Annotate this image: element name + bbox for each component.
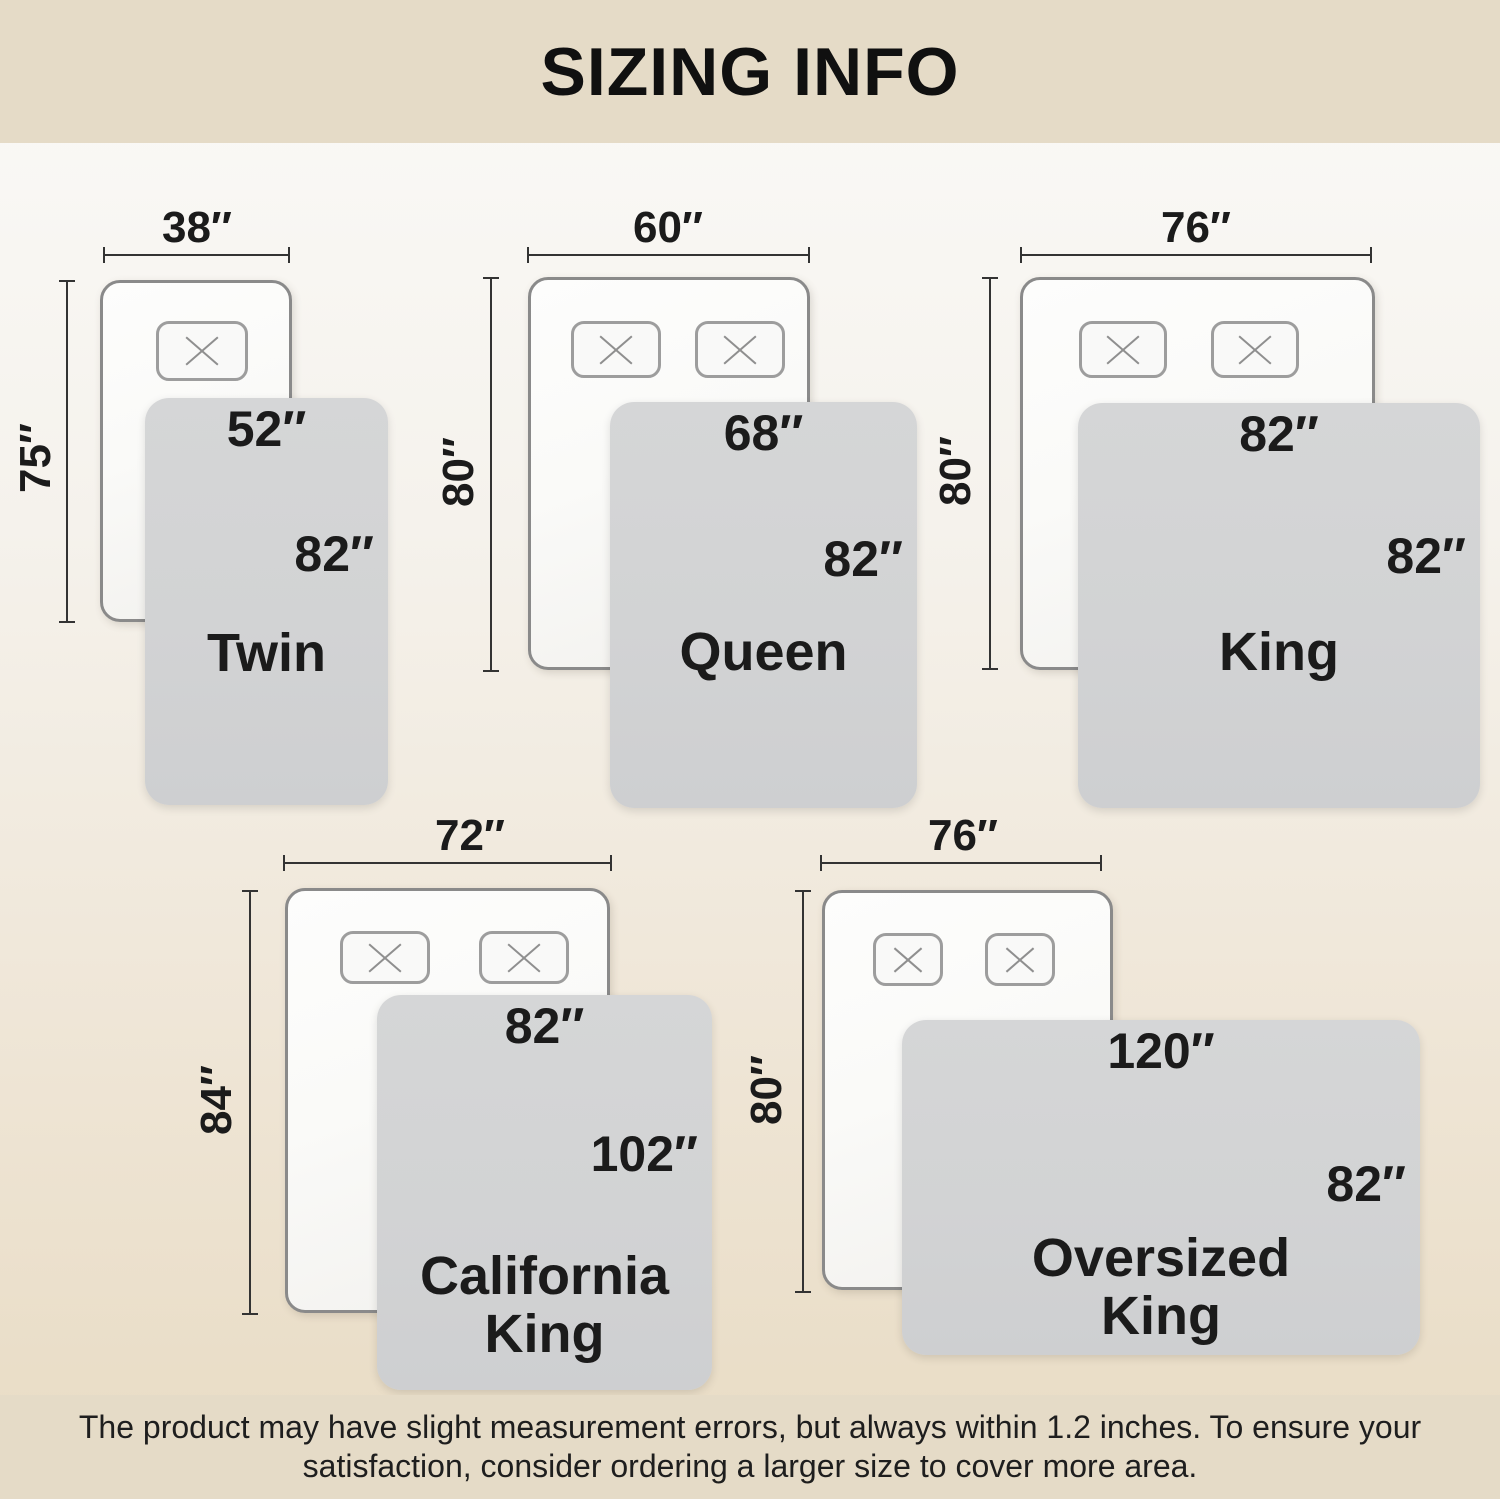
- blanket-length-label: 82″: [1326, 1155, 1406, 1213]
- pillow: [1211, 321, 1299, 378]
- length-dimension-line: [982, 277, 998, 670]
- disclaimer-line2: satisfaction, consider ordering a larger…: [303, 1447, 1198, 1486]
- mattress-length-label: 75″: [11, 423, 61, 493]
- length-dimension-line: [242, 890, 258, 1315]
- blanket-length-label: 102″: [591, 1125, 698, 1183]
- footer-note: The product may have slight measurement …: [0, 1395, 1500, 1499]
- mattress-width-label: 76″: [1161, 203, 1231, 253]
- mattress-length-label: 80″: [931, 436, 981, 506]
- pillow: [571, 321, 661, 378]
- blanket-width-label: 82″: [377, 997, 712, 1055]
- mattress-width-label: 38″: [162, 203, 232, 253]
- length-dimension-line: [795, 890, 811, 1293]
- page-title: SIZING INFO: [541, 33, 960, 111]
- sizing-infographic: SIZING INFO 38″ 75″ 52″ 82″ Twin 60″ 80″…: [0, 0, 1500, 1499]
- blanket: 82″ 82″ King: [1078, 403, 1480, 808]
- pillow: [156, 321, 248, 381]
- blanket: 120″ 82″ Oversized King: [902, 1020, 1420, 1355]
- mattress-width-label: 72″: [435, 811, 505, 861]
- blanket-length-label: 82″: [294, 525, 374, 583]
- bed-size-name: Twin: [145, 624, 388, 682]
- pillow: [695, 321, 785, 378]
- mattress-length-label: 80″: [434, 437, 484, 507]
- bed-size-name: Queen: [610, 623, 917, 681]
- blanket-width-label: 82″: [1078, 405, 1480, 463]
- blanket-width-label: 52″: [145, 400, 388, 458]
- blanket: 52″ 82″ Twin: [145, 398, 388, 805]
- blanket-length-label: 82″: [1386, 527, 1466, 585]
- pillow: [479, 931, 569, 984]
- length-dimension-line: [483, 277, 499, 672]
- mattress-length-label: 84″: [192, 1065, 242, 1135]
- blanket-length-label: 82″: [823, 530, 903, 588]
- blanket: 82″ 102″ California King: [377, 995, 712, 1390]
- blanket-width-label: 68″: [610, 404, 917, 462]
- pillow: [985, 933, 1055, 986]
- mattress-width-label: 60″: [633, 203, 703, 253]
- pillow: [340, 931, 430, 984]
- bed-size-name: King: [1078, 623, 1480, 681]
- blanket: 68″ 82″ Queen: [610, 402, 917, 808]
- bed-size-name: Oversized King: [1006, 1229, 1316, 1346]
- mattress-length-label: 80″: [742, 1055, 792, 1125]
- length-dimension-line: [59, 280, 75, 623]
- pillow: [1079, 321, 1167, 378]
- disclaimer-line1: The product may have slight measurement …: [79, 1408, 1421, 1447]
- pillow: [873, 933, 943, 986]
- mattress-width-label: 76″: [928, 811, 998, 861]
- bed-size-name: California King: [390, 1247, 700, 1364]
- header-banner: SIZING INFO: [0, 0, 1500, 143]
- blanket-width-label: 120″: [902, 1022, 1420, 1080]
